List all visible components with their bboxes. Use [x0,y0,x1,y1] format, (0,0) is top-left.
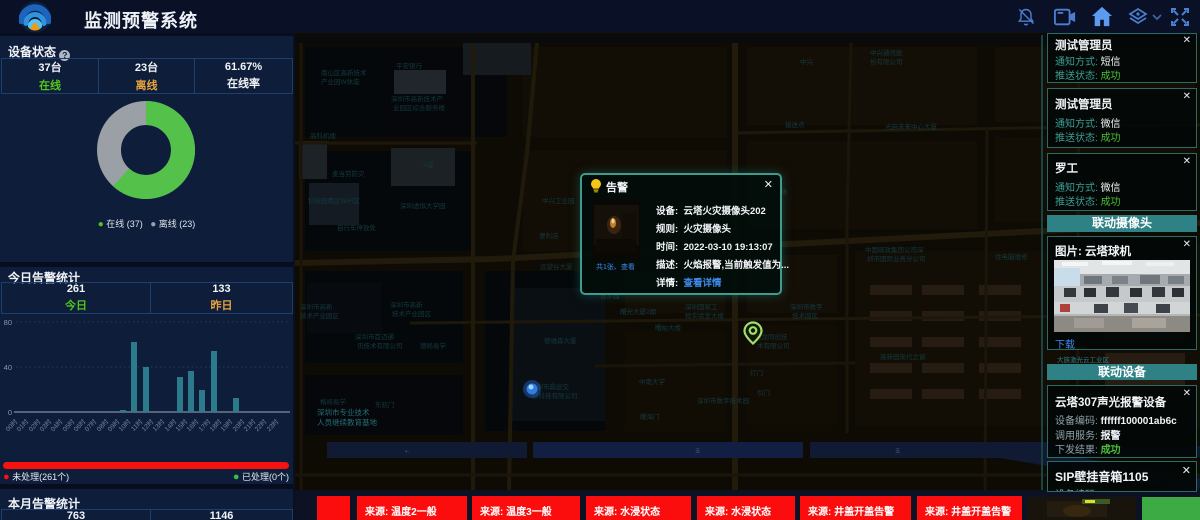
svg-text:科技园南区WiFi区: 科技园南区WiFi区 [308,196,360,205]
svg-text:40: 40 [4,363,12,372]
svg-text:深圳虚拟大学园: 深圳虚拟大学园 [400,201,446,210]
svg-text:术有限公司: 术有限公司 [757,341,790,350]
svg-text:南山区高新技术: 南山区高新技术 [321,68,367,77]
svg-text:麦当劳防灾: 麦当劳防灾 [332,169,365,178]
svg-text:深圳市数字技术园: 深圳市数字技术园 [697,396,749,405]
svg-text:深圳市专业技术: 深圳市专业技术 [317,407,370,417]
svg-text:德维森大厦: 德维森大厦 [544,336,577,345]
svg-text:接送点: 接送点 [785,120,805,129]
svg-text:高科机楼: 高科机楼 [310,131,337,140]
svg-text:住电脑维修: 住电脑维修 [995,252,1028,261]
svg-text:格局易学: 格局易学 [320,397,347,406]
svg-text:技术产业园区: 技术产业园区 [392,309,432,318]
svg-text:技术园区: 技术园区 [792,311,819,320]
svg-text:自行车停放处: 自行车停放处 [337,223,377,232]
svg-text:深圳市数字: 深圳市数字 [790,302,823,311]
svg-text:圳市国际业务分公司: 圳市国际业务分公司 [867,254,926,263]
svg-text:五: 五 [895,448,901,455]
svg-text:⇠: ⇠ [405,449,410,455]
svg-text:技术产业园区: 技术产业园区 [300,311,340,320]
svg-text:五: 五 [695,448,701,455]
svg-text:便利店: 便利店 [539,231,559,240]
svg-text:份有限公司: 份有限公司 [870,57,903,66]
svg-text:深圳国家工: 深圳国家工 [685,302,718,311]
svg-text:曙柏大楼: 曙柏大楼 [655,323,682,332]
svg-text:高新园现代之窗: 高新园现代之窗 [880,352,926,361]
svg-text:引门: 引门 [757,388,770,397]
svg-text:中南大学: 中南大学 [639,377,666,386]
svg-text:深圳市高新技术产: 深圳市高新技术产 [391,94,444,103]
svg-text:中兴通讯股: 中兴通讯股 [870,48,903,57]
svg-text:深圳市高新: 深圳市高新 [390,300,423,309]
svg-text:曙海门: 曙海门 [640,412,660,421]
svg-text:平安银行: 平安银行 [396,61,423,70]
svg-text:远望谷大厦: 远望谷大厦 [540,262,573,271]
svg-text:0: 0 [8,408,12,417]
svg-text:程实验室大楼: 程实验室大楼 [685,311,725,320]
svg-text:80: 80 [4,318,12,327]
svg-text:曙光大厦2期: 曙光大厦2期 [620,307,657,316]
svg-text:东航门: 东航门 [375,400,395,409]
svg-text:深圳市高新: 深圳市高新 [300,302,333,311]
svg-text:中兴: 中兴 [800,57,814,66]
svg-text:德局易学: 德局易学 [420,341,447,350]
svg-text:A座: A座 [423,160,434,169]
svg-text:中兴工业园: 中兴工业园 [542,196,575,205]
svg-text:业园区综合服务楼: 业园区综合服务楼 [393,103,446,112]
svg-text:中国邮政集团公司深: 中国邮政集团公司深 [865,245,924,254]
svg-text:讯技术有限公司: 讯技术有限公司 [357,341,403,350]
svg-text:深圳市首迈通: 深圳市首迈通 [355,332,395,341]
svg-text:灯门: 灯门 [750,368,763,377]
svg-text:产业园W休座: 产业园W休座 [321,77,360,86]
svg-text:光启未来中心大厦: 光启未来中心大厦 [885,122,938,131]
svg-text:人员继续教育基地: 人员继续教育基地 [317,417,377,427]
